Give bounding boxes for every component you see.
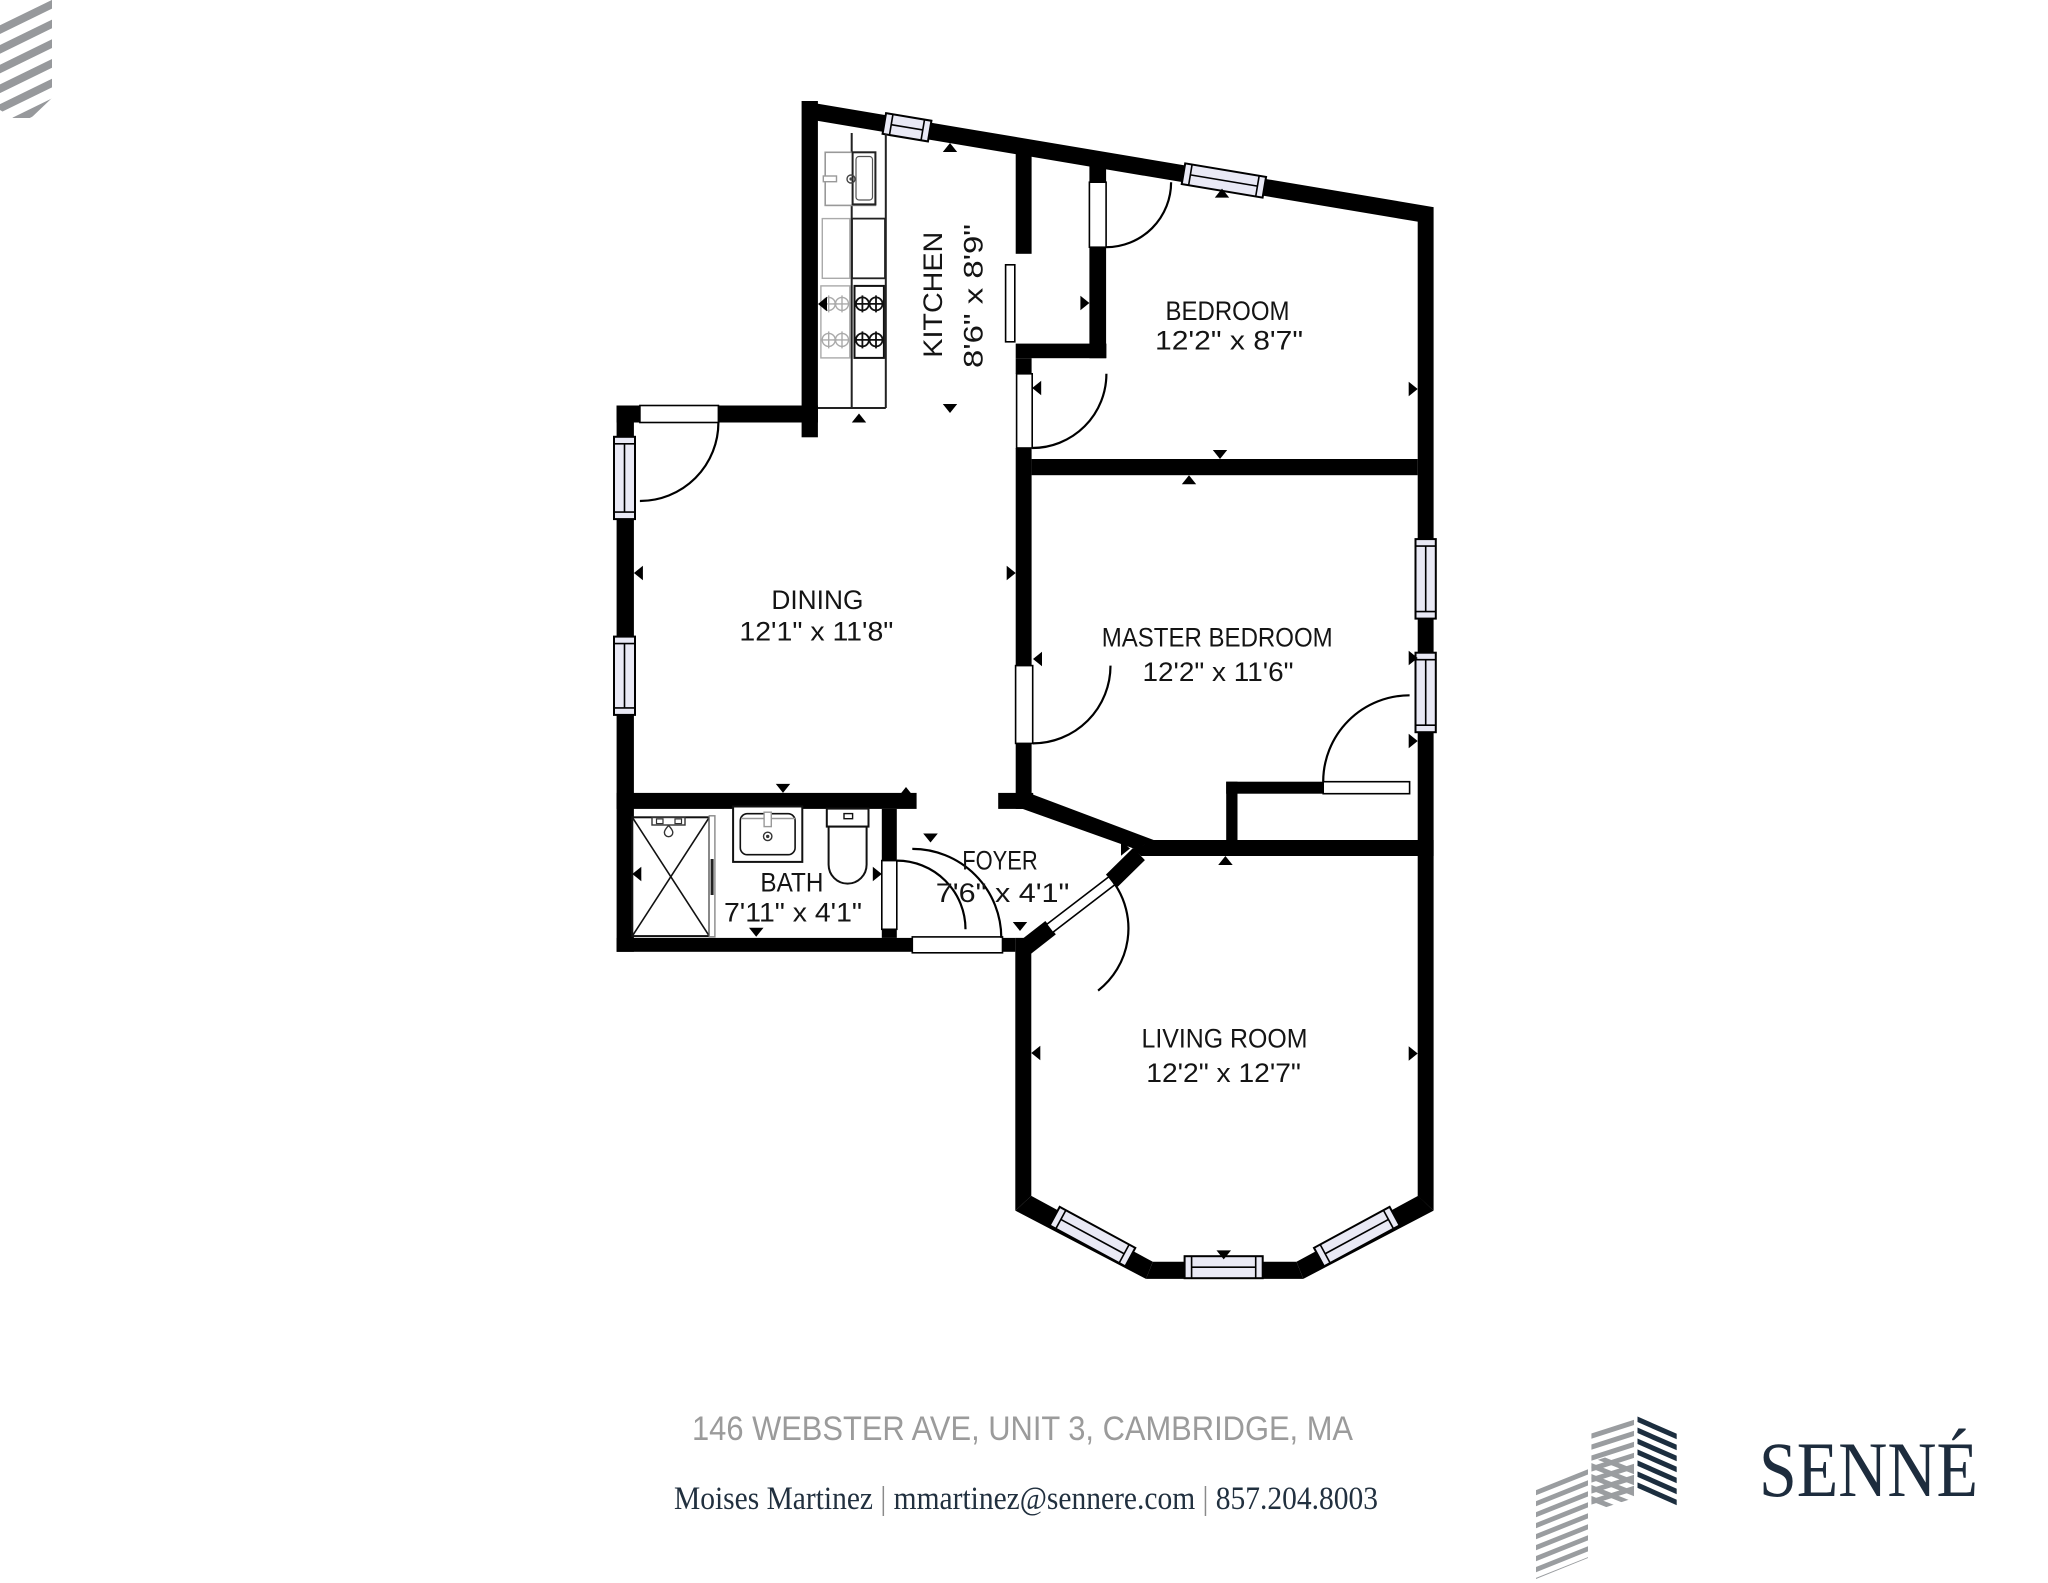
svg-text:LIVING ROOM: LIVING ROOM — [1142, 1023, 1308, 1053]
svg-text:BATH: BATH — [760, 868, 823, 898]
svg-text:8'6" x 8'9": 8'6" x 8'9" — [958, 224, 988, 368]
svg-text:SENNÉ: SENNÉ — [1759, 1426, 1978, 1513]
svg-text:BEDROOM: BEDROOM — [1166, 296, 1290, 326]
svg-text:12'1" x 11'8": 12'1" x 11'8" — [739, 617, 893, 647]
svg-text:7'11" x 4'1": 7'11" x 4'1" — [724, 898, 862, 928]
svg-text:MASTER BEDROOM: MASTER BEDROOM — [1102, 622, 1333, 652]
svg-text:Moises Martinez | mmartinez@se: Moises Martinez | mmartinez@sennere.com … — [674, 1481, 1378, 1517]
svg-text:DINING: DINING — [771, 585, 863, 615]
svg-text:12'2" x 12'7": 12'2" x 12'7" — [1146, 1058, 1301, 1088]
svg-text:12'2" x 11'6": 12'2" x 11'6" — [1143, 657, 1294, 687]
svg-text:FOYER: FOYER — [962, 846, 1038, 876]
svg-text:12'2" x 8'7": 12'2" x 8'7" — [1155, 325, 1303, 355]
svg-text:146 WEBSTER AVE, UNIT 3, CAMBR: 146 WEBSTER AVE, UNIT 3, CAMBRIDGE, MA — [692, 1410, 1353, 1448]
svg-text:7'6" x 4'1": 7'6" x 4'1" — [936, 878, 1070, 908]
svg-text:KITCHEN: KITCHEN — [918, 232, 948, 358]
